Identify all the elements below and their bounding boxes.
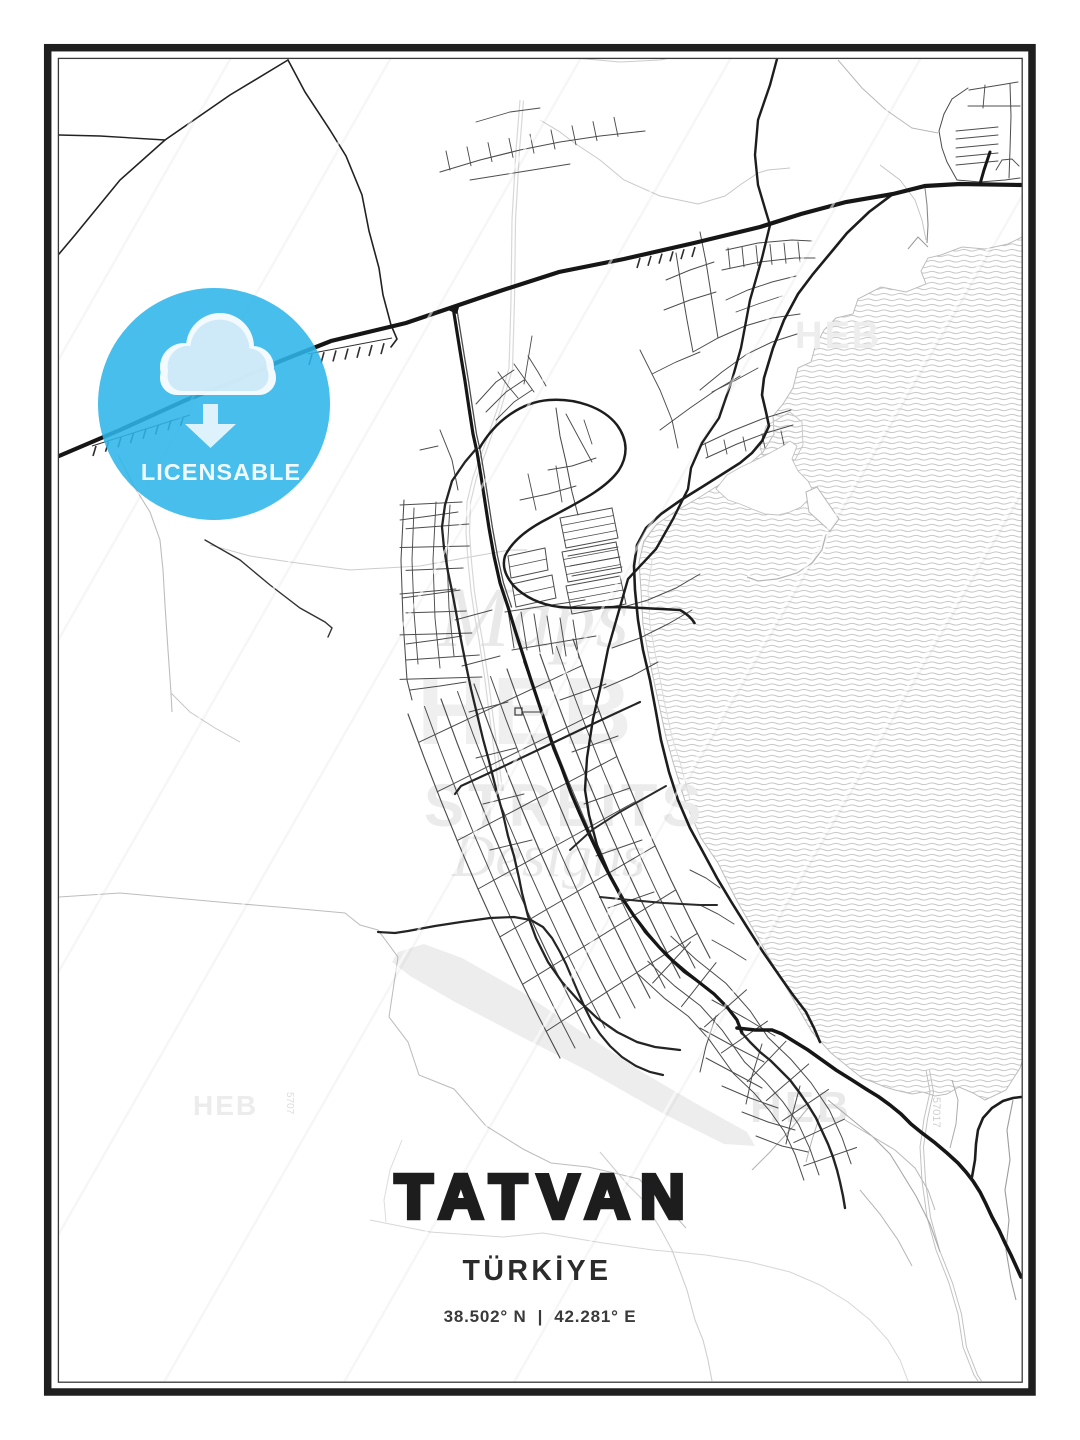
svg-text:TATVAN: TATVAN — [395, 1163, 696, 1232]
svg-text:38.502° N | 42.281° E: 38.502° N | 42.281° E — [444, 1307, 637, 1326]
svg-text:5707: 5707 — [284, 1092, 295, 1115]
svg-text:HEB: HEB — [193, 1090, 258, 1121]
svg-text:HEB: HEB — [795, 315, 881, 357]
svg-text:Designs: Designs — [451, 823, 645, 889]
svg-text:LICENSABLE: LICENSABLE — [141, 459, 301, 485]
svg-text:TÜRKİYE: TÜRKİYE — [463, 1255, 612, 1287]
